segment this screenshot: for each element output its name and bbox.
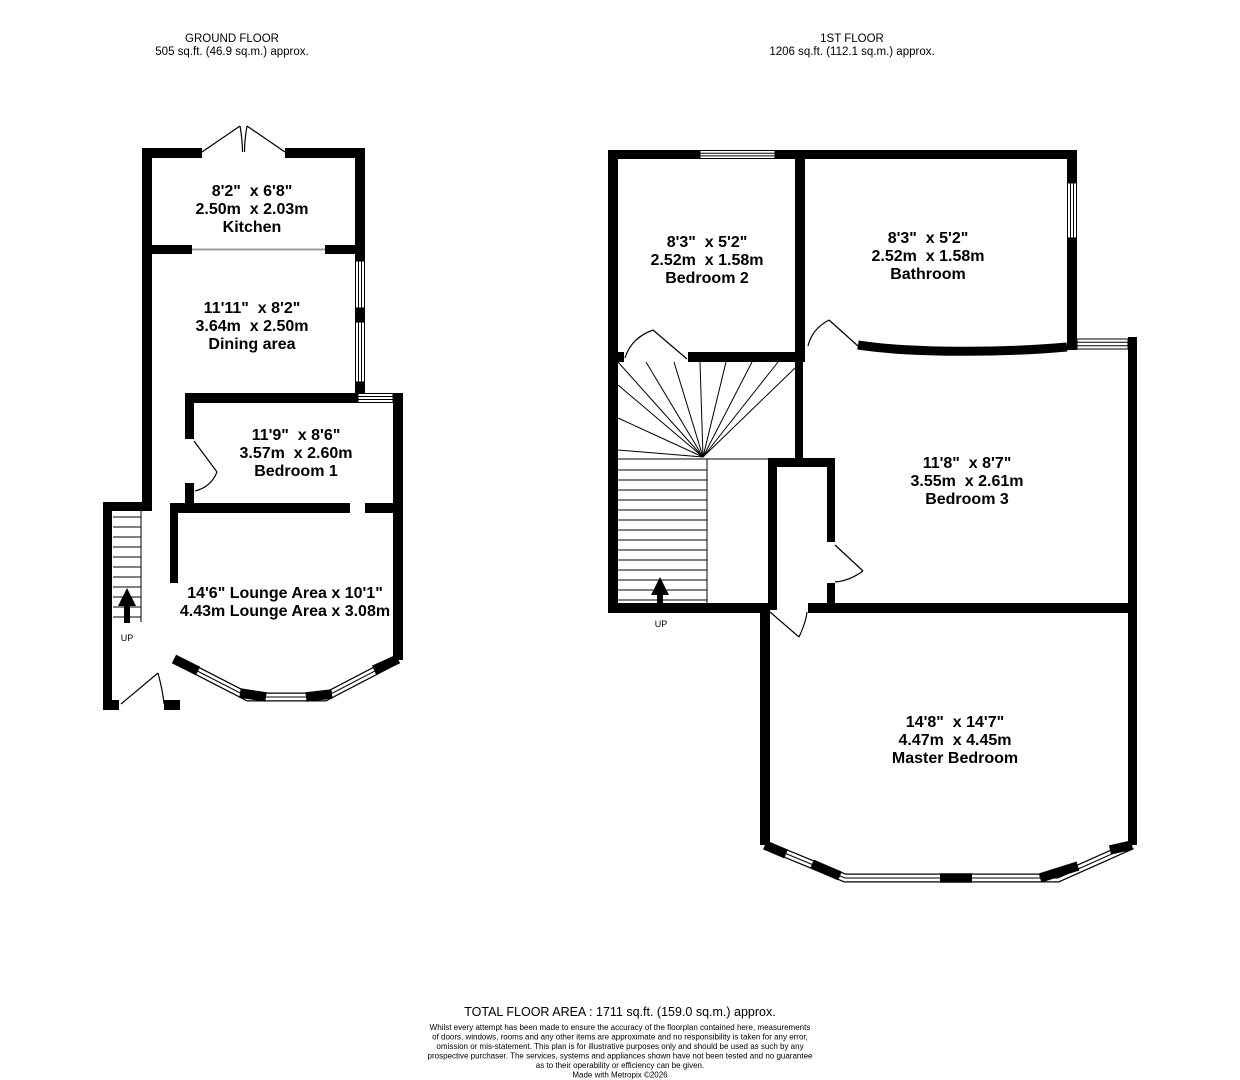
ground-floor-plan: UP 8'2" x 6'8" 2.50m x 2.03m Kitchen 11'…	[103, 126, 403, 710]
ground-floor-header: GROUND FLOOR 505 sq.ft. (46.9 sq.m.) app…	[155, 33, 308, 58]
up-arrow-icon	[118, 588, 136, 623]
bedroom3-label: 11'8" x 8'7" 3.55m x 2.61m Bedroom 3	[911, 455, 1024, 508]
footer: TOTAL FLOOR AREA : 1711 sq.ft. (159.0 sq…	[428, 1005, 814, 1080]
disclaimer-line: omission or mis-statement. This plan is …	[436, 1042, 803, 1051]
bathroom-door	[808, 320, 858, 346]
first-floor-area: 1206 sq.ft. (112.1 sq.m.) approx.	[769, 46, 934, 58]
dining-label: 11'11" x 8'2" 3.64m x 2.50m Dining area	[196, 300, 309, 353]
lounge-label: 14'6" Lounge Area x 10'1" 4.43m Lounge A…	[180, 585, 390, 620]
bedroom2-name: Bedroom 2	[665, 270, 749, 287]
master-bedroom-label: 14'8" x 14'7" 4.47m x 4.45m Master Bedro…	[892, 714, 1018, 767]
bedroom1-window	[358, 394, 393, 403]
bedroom3-window	[1077, 339, 1128, 349]
bedroom2-dims-imperial: 8'3" x 5'2"	[667, 234, 748, 251]
kitchen-dims-metric: 2.50m x 2.03m	[196, 201, 309, 218]
dining-window-lower	[356, 322, 365, 382]
bedroom3-door	[835, 545, 863, 582]
kitchen-label: 8'2" x 6'8" 2.50m x 2.03m Kitchen	[196, 183, 309, 236]
first-floor-header: 1ST FLOOR 1206 sq.ft. (112.1 sq.m.) appr…	[769, 33, 934, 58]
bedroom3-dims-metric: 3.55m x 2.61m	[911, 473, 1024, 490]
bathroom-label: 8'3" x 5'2" 2.52m x 1.58m Bathroom	[872, 230, 985, 283]
credit-line: Made with Metropix ©2026	[572, 1071, 668, 1080]
bathroom-name: Bathroom	[890, 266, 966, 283]
master-bedroom-door	[770, 612, 807, 637]
disclaimer-line: of doors, windows, rooms and any other i…	[432, 1033, 808, 1042]
bathroom-dims-metric: 2.52m x 1.58m	[872, 248, 985, 265]
kitchen-double-door	[202, 126, 285, 152]
first-floor-title: 1ST FLOOR	[820, 33, 884, 45]
total-floor-area: TOTAL FLOOR AREA : 1711 sq.ft. (159.0 sq…	[464, 1005, 775, 1019]
ground-up-label: UP	[121, 633, 134, 643]
dining-name: Dining area	[208, 336, 295, 353]
disclaimer-line: as to their operability or efficiency ca…	[536, 1061, 704, 1070]
disclaimer-line: Whilst every attempt has been made to en…	[430, 1023, 811, 1032]
kitchen-name: Kitchen	[223, 219, 282, 236]
bedroom2-dims-metric: 2.52m x 1.58m	[651, 252, 764, 269]
master-dims-imperial: 14'8" x 14'7"	[906, 714, 1004, 731]
bedroom1-dims-metric: 3.57m x 2.60m	[240, 445, 353, 462]
dining-window-upper	[356, 261, 365, 308]
straight-flight	[618, 470, 707, 600]
floorplan-page: GROUND FLOOR 505 sq.ft. (46.9 sq.m.) app…	[0, 0, 1240, 1080]
bedroom1-door	[194, 441, 217, 491]
ground-floor-area: 505 sq.ft. (46.9 sq.m.) approx.	[155, 46, 308, 58]
front-door	[121, 673, 164, 704]
bedroom1-name: Bedroom 1	[254, 463, 338, 480]
bathroom-dims-imperial: 8'3" x 5'2"	[888, 230, 969, 247]
master-bay-window	[765, 845, 1132, 878]
first-up-label: UP	[655, 619, 668, 629]
bathroom-window	[1068, 183, 1077, 238]
bedroom2-label: 8'3" x 5'2" 2.52m x 1.58m Bedroom 2	[651, 234, 764, 287]
ground-staircase: UP	[113, 510, 141, 643]
floorplan-canvas: GROUND FLOOR 505 sq.ft. (46.9 sq.m.) app…	[0, 0, 1240, 1080]
bathroom-curved-wall	[858, 345, 1067, 351]
kitchen-dims-imperial: 8'2" x 6'8"	[212, 183, 293, 200]
first-floor-plan: UP 8'3" x 5'2" 2.52m x 1.58m Bedroom 2 8…	[608, 150, 1137, 878]
dining-dims-imperial: 11'11" x 8'2"	[204, 300, 301, 317]
dining-dims-metric: 3.64m x 2.50m	[196, 318, 309, 335]
bedroom1-dims-imperial: 11'9" x 8'6"	[252, 427, 341, 444]
winder-fan	[618, 362, 795, 457]
bedroom2-door	[625, 330, 687, 359]
lounge-line1: 14'6" Lounge Area x 10'1"	[187, 585, 383, 602]
lounge-bay-window	[174, 659, 398, 697]
bedroom1-label: 11'9" x 8'6" 3.57m x 2.60m Bedroom 1	[240, 427, 353, 480]
master-dims-metric: 4.47m x 4.45m	[899, 732, 1012, 749]
bedroom3-name: Bedroom 3	[925, 491, 1009, 508]
bedroom2-window	[700, 151, 775, 159]
ground-floor-title: GROUND FLOOR	[185, 33, 279, 45]
lounge-line2: 4.43m Lounge Area x 3.08m	[180, 603, 390, 620]
master-name: Master Bedroom	[892, 750, 1018, 767]
disclaimer-line: prospective purchaser. The services, sys…	[428, 1052, 814, 1061]
bedroom3-dims-imperial: 11'8" x 8'7"	[923, 455, 1012, 472]
